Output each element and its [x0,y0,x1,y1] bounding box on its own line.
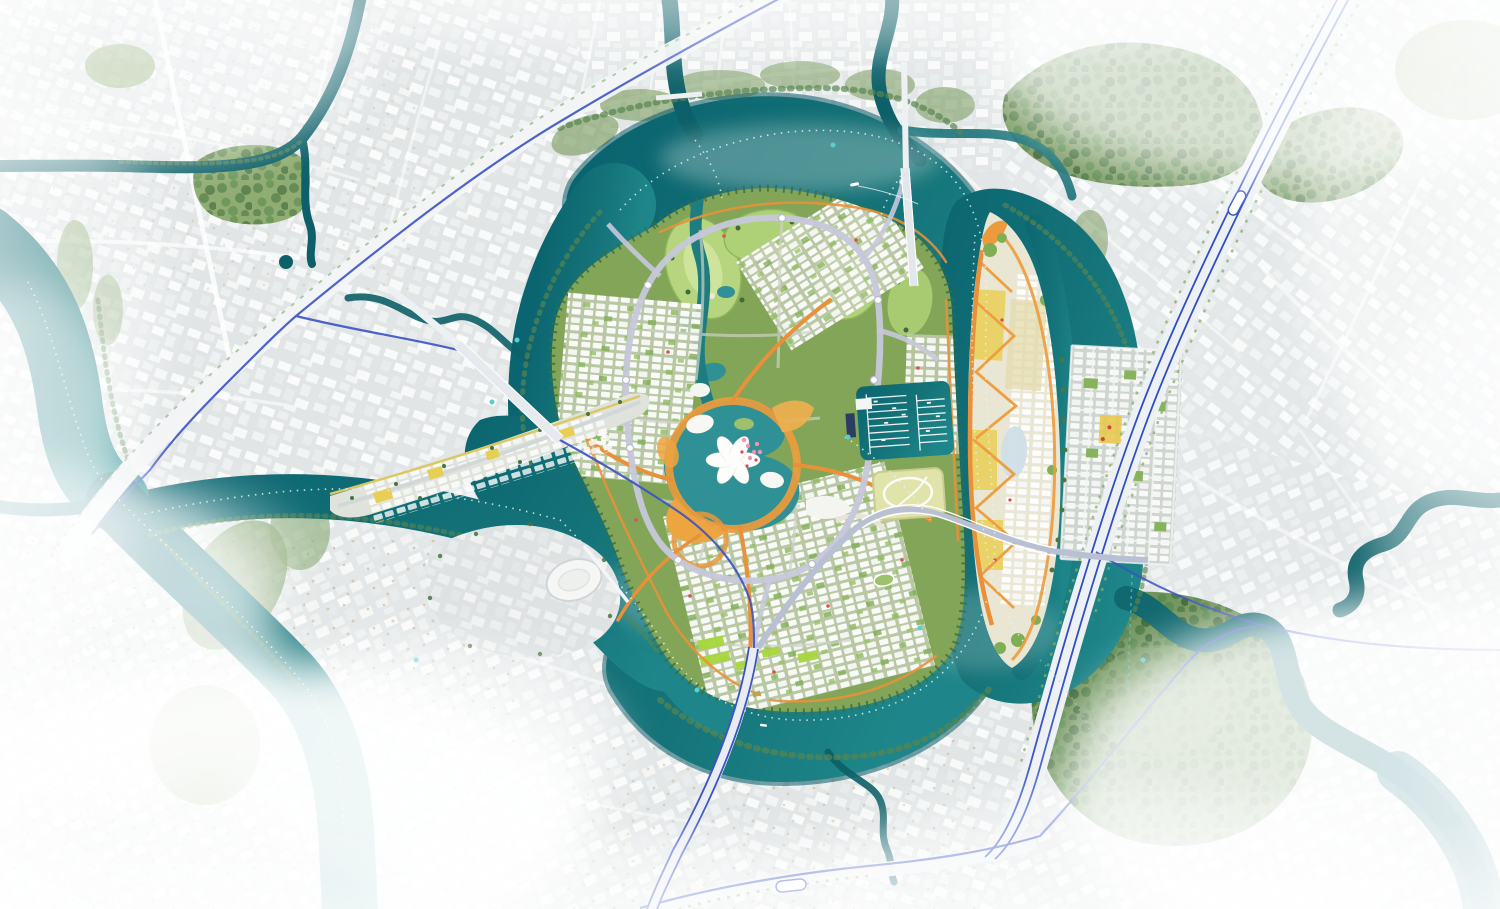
masterplan-screenshot [0,0,1500,909]
marina [844,380,955,461]
masterplan-map [0,0,1500,909]
marina-tower [845,413,856,438]
